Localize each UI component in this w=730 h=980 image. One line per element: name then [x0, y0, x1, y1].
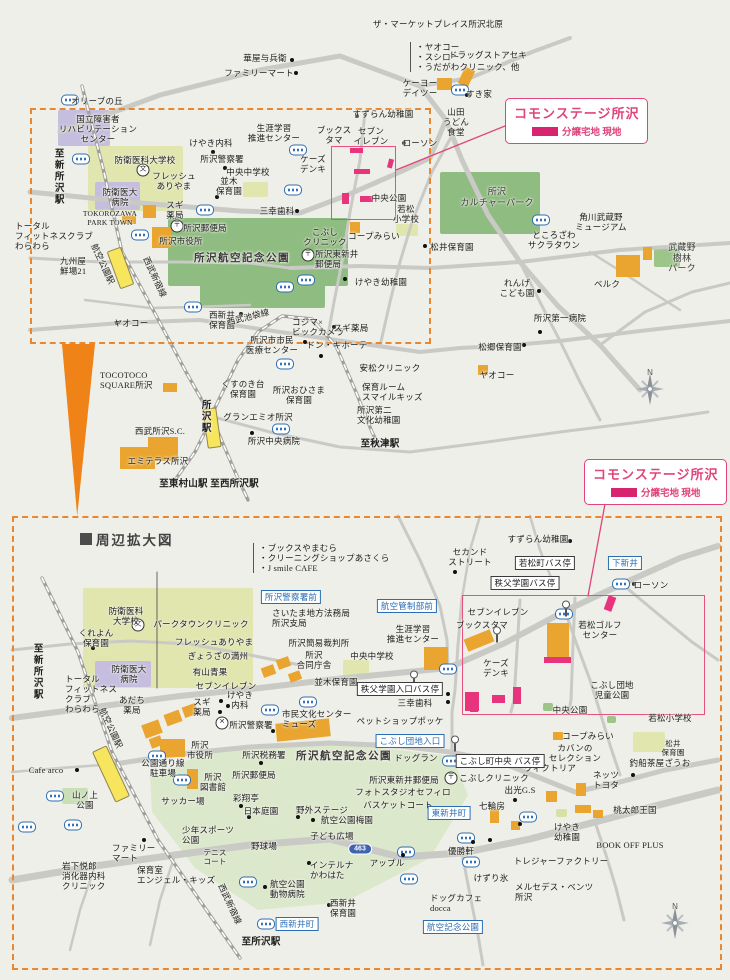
- detail-map-label: カバンの セレクション: [549, 743, 601, 763]
- detail-poi-dot: [296, 815, 300, 819]
- detail-building: [490, 810, 499, 823]
- overview-map-label: 所沢 カルチャーパーク: [460, 186, 533, 207]
- detail-compass-icon: N: [658, 901, 692, 943]
- overview-map-label: くすのき台 保育園: [221, 379, 264, 399]
- overview-bus-stop-icon: [297, 275, 315, 286]
- overview-map-label: 所沢中央病院: [248, 436, 300, 446]
- site-callout-title: コモンステージ所沢: [514, 103, 639, 122]
- detail-map-label: 七輪房: [479, 801, 505, 811]
- overview-map-label: ドン・キホーテ: [307, 340, 368, 350]
- overview-map-label: 所沢東新井 郵便局: [315, 249, 359, 269]
- site-callout-title: コモンステージ所沢: [593, 464, 718, 483]
- overview-map-label: 山田 うどん 食堂: [443, 107, 469, 137]
- overview-poi-dot: [423, 244, 427, 248]
- detail-map-label: 少年スポーツ 公園: [182, 825, 234, 845]
- overview-map-label: 角川武蔵野 ミュージアム: [575, 212, 626, 232]
- detail-bus-signpost-icon: [451, 736, 459, 751]
- overview-map-label: 国立障害者 リハビリテーション センター: [59, 114, 137, 144]
- overview-map-label: トータル フィットネスクラブ わらわら: [15, 221, 93, 251]
- detail-map-label: 所沢 図書館: [200, 772, 226, 792]
- detail-map-label: 航空管制部前: [377, 599, 437, 613]
- detail-map-label: 日本庭園: [244, 806, 279, 816]
- detail-map-label: ローソン: [634, 580, 669, 590]
- overview-map-label: 防衛医大 病院: [103, 187, 138, 207]
- detail-map-label: 航空公園 動物病院: [270, 879, 305, 899]
- detail-map-label: 至新所沢駅: [30, 643, 41, 701]
- overview-map-label: 至秋津駅: [361, 439, 400, 450]
- detail-map-label: フォトスタジオセフィロ: [355, 787, 451, 797]
- detail-map-label: 釣船茶屋ざうお: [630, 758, 691, 768]
- site-callout-overview: コモンステージ所沢 分譲宅地 現地: [505, 98, 648, 144]
- detail-map-label: あだち 薬局: [119, 695, 145, 715]
- detail-bus-stop-icon: [462, 857, 480, 868]
- detail-poi-dot: [401, 853, 405, 857]
- detail-post-office-icon: 〒: [445, 772, 458, 785]
- overview-poi-dot: [290, 58, 294, 62]
- detail-map-label: 優勝軒: [448, 846, 474, 856]
- detail-bus-stop-icon: [439, 664, 457, 675]
- detail-map-label: 中央公園: [553, 705, 588, 715]
- overview-map-label: 三幸歯科: [260, 206, 295, 216]
- detail-poi-dot: [263, 885, 267, 889]
- overview-bus-stop-icon: [184, 302, 202, 313]
- overview-post-office-icon: 〒: [171, 220, 184, 233]
- detail-police-icon: ✕: [216, 717, 229, 730]
- overview-map-label: セブン イレブン: [354, 126, 389, 146]
- overview-poi-dot: [294, 71, 298, 75]
- detail-map-label: ケーズ デンキ: [483, 658, 509, 678]
- overview-building: [643, 247, 652, 260]
- detail-building: [576, 783, 586, 796]
- overview-map-label: ケーズ デンキ: [300, 154, 326, 174]
- detail-poi-dot: [219, 699, 223, 703]
- detail-bus-stop-icon: [64, 820, 82, 831]
- overview-map-label: けやき内科: [189, 138, 233, 148]
- overview-map-label: ザ・マーケットプレイス所沢北原: [373, 19, 503, 29]
- detail-map-label: ペットショップポッケ: [356, 716, 443, 726]
- overview-poi-dot: [295, 209, 299, 213]
- overview-map-label: 所沢おひさま 保育園: [273, 385, 325, 405]
- detail-building: [575, 805, 591, 813]
- overview-bus-stop-icon: [72, 154, 90, 165]
- detail-bus-stop-icon: [612, 579, 630, 590]
- detail-map-label: トレジャーファクトリー: [514, 856, 609, 866]
- map-page: コモンステージ所沢 分譲宅地 現地 コモンステージ所沢 分譲宅地 現地 周辺拡大…: [0, 0, 730, 980]
- detail-map-label: BOOK OFF PLUS: [596, 840, 663, 850]
- detail-bus-stop-icon: [18, 822, 36, 833]
- overview-map-label: 所沢警察署: [200, 154, 244, 164]
- detail-map-label: サッカー場: [161, 796, 205, 806]
- detail-map-label: 防衛医大 病院: [112, 664, 147, 684]
- overview-map-label: コープみらい: [348, 231, 400, 241]
- detail-map-label: 保育室 エンジェル・キッズ: [137, 865, 215, 885]
- detail-map-label: メルセデス・ベンツ 所沢: [515, 882, 593, 902]
- detail-map-label: 所沢警察署: [229, 720, 273, 730]
- detail-map-label: バスケットコート: [363, 800, 433, 810]
- detail-map-label: 若松ゴルフ センター: [578, 620, 622, 640]
- overview-map-label: 生涯学習 推進センター: [248, 123, 300, 143]
- overview-map-label: こぶし クリニック: [303, 227, 347, 247]
- detail-map-label: 西新井町: [276, 917, 319, 931]
- overview-map-label: ベルク: [594, 279, 620, 289]
- detail-map-label: 所沢東新井郵便局: [369, 775, 439, 785]
- detail-building: [593, 810, 603, 818]
- detail-map-label: ドッグカフェ docca: [430, 893, 482, 913]
- detail-poi-dot: [142, 838, 146, 842]
- overview-building: [143, 205, 156, 218]
- overview-poi-dot: [343, 277, 347, 281]
- detail-map-label: 若松小学校: [648, 713, 692, 723]
- detail-map-label: ぎょうざの満州: [188, 651, 248, 661]
- detail-map-label: こぶし町中央 バス停: [456, 754, 545, 768]
- detail-poi-dot: [75, 768, 79, 772]
- detail-bus-stop-icon: [299, 697, 317, 708]
- detail-poi-dot: [471, 840, 475, 844]
- overview-site-area-outline: [331, 146, 396, 220]
- overview-poi-dot: [250, 431, 254, 435]
- overview-map-label: 防衛医科大学校: [115, 155, 176, 165]
- overview-map-label: TOCOTOCO SQUARE所沢: [100, 370, 153, 390]
- detail-map-label: 所沢郵便局: [232, 770, 276, 780]
- detail-poi-dot: [518, 822, 522, 826]
- site-legend-swatch: [611, 488, 637, 497]
- detail-map-label: 若松町バス停: [515, 556, 575, 570]
- detail-map-label: 東新井町: [428, 806, 471, 820]
- overview-building: [163, 383, 177, 392]
- detail-map-title-text: 周辺拡大図: [96, 529, 174, 549]
- detail-map-label: インテルナ かわはた: [310, 860, 354, 880]
- overview-map-label: ケーヨー デイツー: [403, 78, 438, 98]
- detail-poi-dot: [568, 539, 572, 543]
- detail-map-label: 子ども広場: [310, 831, 354, 841]
- detail-map-label: ブックスタマ: [456, 620, 508, 630]
- detail-map-label: けやき 幼稚園: [554, 822, 580, 842]
- detail-map-label: 所沢航空記念公園: [296, 751, 392, 763]
- title-square-icon: [80, 533, 92, 545]
- detail-route-463-badge: 463: [348, 844, 372, 855]
- detail-map-label: 並木保育園: [314, 677, 358, 687]
- detail-bus-stop-icon: [46, 791, 64, 802]
- detail-map-label: 西新井 保育園: [330, 898, 356, 918]
- overview-map-label: 並木 保育園: [216, 176, 242, 196]
- overview-building: [616, 255, 640, 277]
- overview-map-label: ローソン: [403, 138, 438, 148]
- detail-poi-dot: [488, 838, 492, 842]
- detail-map-label: 航空公園梅園: [321, 815, 373, 825]
- overview-map-label: ファミリーマート: [224, 68, 294, 78]
- overview-poi-dot: [537, 289, 541, 293]
- detail-poi-dot: [631, 773, 635, 777]
- detail-map-label: ファミリー マート: [112, 843, 156, 863]
- detail-map-label: こぶしクリニック: [459, 773, 529, 783]
- overview-map-label: 中央公園: [372, 193, 407, 203]
- detail-map-label: セカンド ストリート: [448, 547, 492, 567]
- overview-map-label: 所沢市市民 医療センター: [246, 335, 298, 355]
- detail-map-label: 生涯学習 推進センター: [387, 624, 439, 644]
- detail-map-label: 出光G.S: [505, 785, 536, 795]
- overview-map-label: すき家: [466, 89, 492, 99]
- detail-map-label: 公園通り線 駐車場: [141, 758, 185, 778]
- detail-map-label: 秩父学園入口バス停: [357, 682, 443, 696]
- overview-map-label: 至新所沢駅: [51, 148, 62, 206]
- detail-poi-dot: [446, 692, 450, 696]
- overview-bus-stop-icon: [196, 205, 214, 216]
- overview-map-label: ブックス タマ: [317, 125, 352, 145]
- detail-poi-dot: [453, 570, 457, 574]
- detail-map-label: 所沢警察署前: [261, 590, 321, 604]
- site-legend-label: 分譲宅地 現地: [562, 124, 621, 138]
- overview-post-office-icon: 〒: [302, 249, 315, 262]
- detail-poi-dot: [218, 710, 222, 714]
- detail-map-label: 野球場: [251, 841, 277, 851]
- detail-poi-dot: [259, 761, 263, 765]
- overview-map-label: 保育ルーム スマイルキッズ: [362, 382, 423, 402]
- overview-compass-icon: N: [633, 367, 667, 409]
- detail-map-label: コープみらい: [562, 731, 614, 741]
- overview-bus-stop-icon: [276, 282, 294, 293]
- detail-bus-stop-icon: [519, 812, 537, 823]
- detail-bus-stop-icon: [261, 705, 279, 716]
- detail-map-label: 市民文化センター ミューズ: [282, 709, 352, 729]
- overview-poi-dot: [538, 330, 542, 334]
- overview-poi-dot: [319, 354, 323, 358]
- overview-building: [437, 78, 452, 90]
- detail-map-label: Cafe arco: [29, 765, 64, 775]
- overview-bus-stop-icon: [284, 185, 302, 196]
- overview-map-label: スギ薬局: [334, 323, 369, 333]
- overview-bus-stop-icon: [532, 215, 550, 226]
- detail-map-label: こぶし団地 児童公園: [590, 680, 634, 700]
- detail-map-label: ネッツ トヨタ: [593, 770, 619, 790]
- overview-map-label: グランエミオ所沢: [223, 412, 293, 422]
- overview-map-label: 若松 小学校: [393, 204, 419, 224]
- detail-map-label: 所沢 市役所: [187, 740, 213, 760]
- overview-map-label: ドラッグストアセキ: [449, 50, 527, 60]
- detail-map-label: 彩翔亭: [233, 793, 259, 803]
- detail-map-label: 至所沢駅: [242, 937, 281, 948]
- detail-map-label: こぶし団地入口: [376, 734, 445, 748]
- detail-map-label: 三幸歯科: [398, 698, 433, 708]
- detail-map-label: 中央中学校: [350, 651, 394, 661]
- overview-bus-stop-icon: [272, 424, 290, 435]
- detail-map-label: 松井 保育園: [661, 740, 684, 758]
- overview-map-label: けやき幼稚園: [355, 277, 407, 287]
- detail-map-label: けずり氷: [474, 873, 509, 883]
- detail-map-label: 山ノ上 公園: [72, 790, 98, 810]
- overview-map-label: れんげ こども園: [500, 278, 535, 298]
- overview-map-label: オリーブの丘: [71, 96, 123, 106]
- overview-map-label: ヤオコー: [114, 318, 149, 328]
- detail-map-label: 防衛医科 大学校: [109, 606, 144, 626]
- overview-poi-dot: [522, 343, 526, 347]
- site-legend-label: 分譲宅地 現地: [641, 485, 700, 499]
- detail-map-label: フレッシュありやま: [175, 637, 253, 647]
- overview-map-label: 武蔵野 樹林 パーク: [668, 242, 696, 274]
- detail-map-label: 有山青果: [193, 667, 228, 677]
- overview-map-label: 安松クリニック: [360, 363, 421, 373]
- detail-map-label: セブンイレブン: [196, 681, 257, 691]
- overview-school-icon: 文: [137, 164, 150, 177]
- detail-poi-dot: [239, 804, 243, 808]
- detail-map-label: テニス コート: [203, 849, 226, 867]
- detail-map-label: アップル: [370, 858, 405, 868]
- overview-map-label: すずらん幼稚園: [353, 109, 414, 119]
- detail-map-label: すずらん幼稚園: [508, 534, 569, 544]
- overview-map-label: 所沢市役所: [159, 236, 203, 246]
- overview-map-label: 所沢郵便局: [183, 223, 227, 233]
- detail-bus-stop-icon: [239, 877, 257, 888]
- detail-poi-dot: [513, 798, 517, 802]
- detail-bus-stop-icon: [257, 919, 275, 930]
- detail-map-label: さいたま地方法務局 所沢支局: [272, 608, 350, 628]
- detail-map-label: 岩下悦郎 消化器内科 クリニック: [62, 861, 106, 891]
- overview-map-label: エミテラス所沢: [128, 456, 189, 466]
- overview-map-label: フレッシュ ありやま: [152, 171, 196, 191]
- detail-map-label: ・ブックスやまむら ・クリーニングショップあさくら ・J smile CAFE: [253, 543, 390, 573]
- detail-map-label: 所沢簡易裁判所: [289, 638, 350, 648]
- detail-map-label: 桃太郎王国: [613, 805, 657, 815]
- detail-map-label: 野外ステージ: [296, 805, 348, 815]
- detail-bus-stop-icon: [397, 847, 415, 858]
- overview-map-label: 華屋与兵衛: [243, 53, 287, 63]
- overview-map-label: 所沢第二 文化幼稚園: [357, 405, 401, 425]
- overview-map-label: 九州屋 鮮場21: [60, 256, 86, 276]
- detail-map-label: 所沢 合同庁舎: [297, 650, 332, 670]
- overview-map-label: スギ 薬局: [166, 200, 183, 220]
- site-callout-detail: コモンステージ所沢 分譲宅地 現地: [584, 459, 727, 505]
- overview-map-label: 所沢第一病院: [534, 313, 586, 323]
- overview-bus-stop-icon: [131, 230, 149, 241]
- detail-map-label: くれよん 保育園: [79, 628, 114, 648]
- overview-map-label: 松井保育園: [430, 242, 474, 252]
- overview-bus-stop-icon: [276, 359, 294, 370]
- overview-map-label: 所沢航空記念公園: [194, 253, 290, 265]
- detail-map-label: 所沢税務署: [242, 750, 286, 760]
- overview-map-label: 西武所沢S.C.: [135, 426, 185, 436]
- detail-map-label: 秩父学園バス停: [491, 576, 560, 590]
- detail-map-label: 航空記念公園: [423, 920, 483, 934]
- detail-map-label: セブンイレブン: [468, 607, 529, 617]
- detail-map-label: パークタウンクリニック: [153, 619, 248, 629]
- overview-map-label: ヤオコー: [480, 370, 515, 380]
- detail-map-title: 周辺拡大図: [80, 529, 174, 549]
- detail-map-label: トータル フィットネス クラブ わらわら: [65, 674, 117, 714]
- detail-poi-dot: [311, 818, 315, 822]
- detail-map-label: けやき 内科: [227, 690, 253, 710]
- detail-map-label: 下新井: [608, 556, 642, 570]
- detail-bus-stop-icon: [400, 874, 418, 885]
- site-legend-swatch: [532, 127, 558, 136]
- detail-bus-signpost-icon: [562, 601, 570, 616]
- overview-map-label: ところざわ サクラタウン: [528, 230, 580, 250]
- detail-building: [546, 791, 557, 802]
- detail-map-label: ドッグラン: [394, 753, 438, 763]
- overview-map-label: 松郷保育園: [478, 342, 522, 352]
- overview-map-label: 至東村山駅 至西所沢駅: [159, 479, 259, 490]
- detail-poi-dot: [446, 700, 450, 704]
- overview-map-label: 所沢駅: [198, 400, 209, 435]
- detail-map-label: スギ 薬局: [193, 697, 210, 717]
